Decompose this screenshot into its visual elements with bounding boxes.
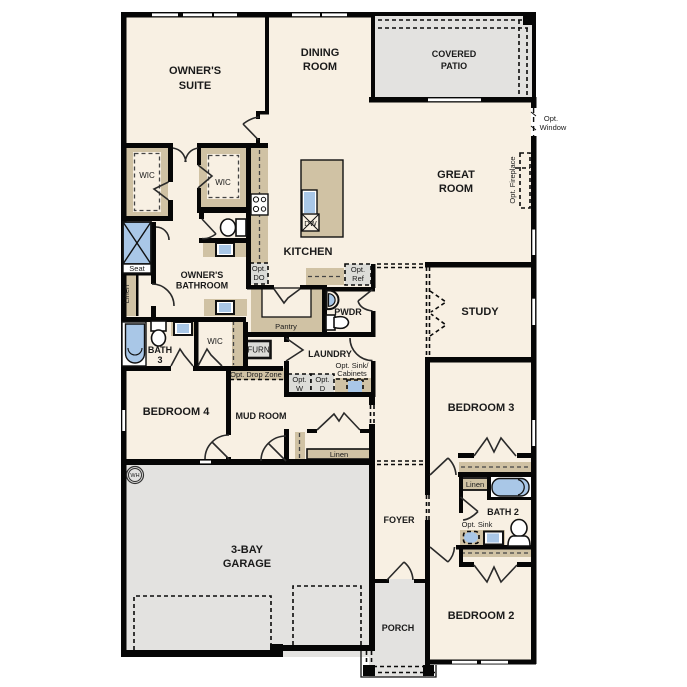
svg-text:OWNER'S: OWNER'S <box>169 65 221 77</box>
svg-text:SUITE: SUITE <box>179 80 211 92</box>
svg-text:BEDROOM 4: BEDROOM 4 <box>143 406 211 418</box>
svg-text:Cabinets: Cabinets <box>337 369 367 378</box>
svg-text:PATIO: PATIO <box>441 61 467 71</box>
svg-text:Opt. Sink: Opt. Sink <box>462 520 493 529</box>
svg-text:Ref: Ref <box>352 274 365 283</box>
svg-text:WIC: WIC <box>215 178 231 187</box>
svg-text:DW: DW <box>304 219 317 228</box>
svg-text:BATHROOM: BATHROOM <box>176 281 228 291</box>
svg-text:PWDR: PWDR <box>334 307 362 317</box>
svg-text:OWNER'S: OWNER'S <box>181 270 224 280</box>
svg-text:COVERED: COVERED <box>432 49 477 59</box>
svg-text:WIC: WIC <box>207 337 223 346</box>
svg-text:Window: Window <box>540 123 567 132</box>
svg-text:ROOM: ROOM <box>303 61 337 73</box>
svg-text:WIC: WIC <box>139 171 155 180</box>
svg-text:3: 3 <box>157 355 162 365</box>
svg-text:Opt.: Opt. <box>292 375 306 384</box>
svg-text:FURN: FURN <box>247 346 269 355</box>
svg-text:Linen: Linen <box>466 480 484 489</box>
svg-text:Pantry: Pantry <box>275 322 297 331</box>
svg-text:MUD ROOM: MUD ROOM <box>236 411 287 421</box>
svg-text:D: D <box>320 384 326 393</box>
svg-text:PORCH: PORCH <box>382 623 415 633</box>
svg-text:DO: DO <box>253 273 264 282</box>
svg-text:Opt. Drop Zone: Opt. Drop Zone <box>230 370 282 379</box>
svg-text:BATH: BATH <box>148 345 172 355</box>
svg-text:FOYER: FOYER <box>383 515 415 525</box>
svg-text:3-BAY: 3-BAY <box>231 544 264 556</box>
svg-text:LAUNDRY: LAUNDRY <box>308 349 352 359</box>
svg-text:GREAT: GREAT <box>437 169 475 181</box>
svg-text:Seat: Seat <box>129 264 145 273</box>
svg-text:Linen: Linen <box>122 285 131 303</box>
svg-text:Opt.: Opt. <box>351 265 365 274</box>
svg-text:ROOM: ROOM <box>439 183 473 195</box>
svg-text:BEDROOM 3: BEDROOM 3 <box>448 402 515 414</box>
svg-text:Opt. Fireplace: Opt. Fireplace <box>508 156 517 203</box>
svg-text:DINING: DINING <box>301 47 340 59</box>
svg-text:Opt.: Opt. <box>252 264 266 273</box>
svg-text:Opt.: Opt. <box>544 114 558 123</box>
svg-text:Opt.: Opt. <box>315 375 329 384</box>
svg-text:BATH 2: BATH 2 <box>487 507 519 517</box>
svg-text:W: W <box>296 384 304 393</box>
svg-text:KITCHEN: KITCHEN <box>284 246 333 258</box>
svg-text:WH: WH <box>130 473 139 479</box>
svg-text:BEDROOM 2: BEDROOM 2 <box>448 610 515 622</box>
svg-text:GARAGE: GARAGE <box>223 558 271 570</box>
svg-text:Linen: Linen <box>330 450 348 459</box>
svg-text:STUDY: STUDY <box>461 306 499 318</box>
